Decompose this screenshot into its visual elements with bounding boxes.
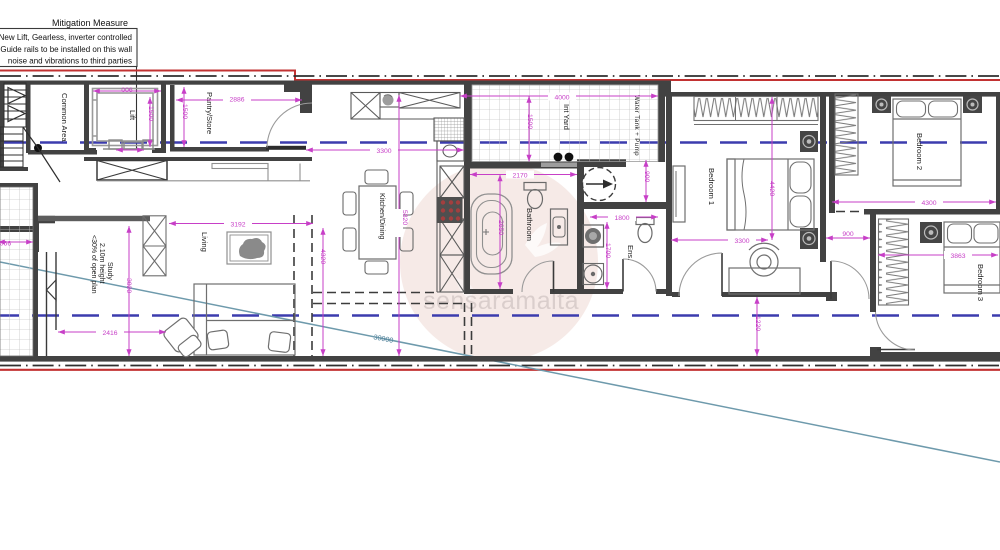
- svg-text:New Lift, Gearless, inverter c: New Lift, Gearless, inverter controlled: [0, 33, 132, 42]
- svg-text:Pantry/Store: Pantry/Store: [205, 92, 214, 134]
- svg-text:2.10m height: 2.10m height: [98, 243, 105, 284]
- svg-text:Bedroom 3: Bedroom 3: [976, 264, 985, 301]
- svg-text:Bedroom 2: Bedroom 2: [915, 133, 924, 170]
- svg-text:900: 900: [643, 171, 650, 183]
- svg-text:1220: 1220: [754, 316, 761, 331]
- svg-text:Guide rails to be installed on: Guide rails to be installed on this wall: [0, 45, 132, 54]
- svg-text:3020: 3020: [125, 278, 132, 293]
- svg-text:noise and vibrations to third: noise and vibrations to third parties: [8, 57, 132, 66]
- svg-text:2416: 2416: [102, 330, 117, 337]
- svg-text:1500: 1500: [147, 106, 154, 121]
- svg-text:4420: 4420: [768, 181, 775, 196]
- svg-text:Water Tank + Pump: Water Tank + Pump: [633, 95, 640, 156]
- svg-text:4000: 4000: [554, 95, 569, 102]
- svg-text:Living: Living: [200, 232, 209, 252]
- svg-text:Ens.: Ens.: [626, 245, 635, 260]
- svg-text:1800: 1800: [614, 215, 629, 222]
- svg-text:4300: 4300: [921, 200, 936, 207]
- svg-text:900: 900: [842, 231, 854, 238]
- svg-text:4320: 4320: [319, 249, 326, 264]
- svg-text:Bathroom: Bathroom: [525, 208, 534, 241]
- svg-text:Int Yard: Int Yard: [562, 104, 571, 130]
- svg-text:2170: 2170: [512, 173, 527, 180]
- svg-text:3300: 3300: [376, 148, 391, 155]
- svg-text:Lift: Lift: [128, 110, 137, 121]
- svg-text:1700: 1700: [604, 243, 611, 258]
- svg-text:Study: Study: [106, 262, 113, 280]
- svg-text:3300: 3300: [734, 238, 749, 245]
- svg-text:3066: 3066: [0, 241, 11, 248]
- svg-text:Common Area: Common Area: [60, 93, 69, 142]
- svg-text:1500: 1500: [526, 114, 533, 129]
- svg-text:Bedroom 1: Bedroom 1: [707, 168, 716, 205]
- svg-text:Kitchen/Dining: Kitchen/Dining: [378, 193, 387, 239]
- svg-text:2886: 2886: [229, 97, 244, 104]
- svg-text:30000: 30000: [373, 332, 394, 345]
- svg-text:<30% of open plan: <30% of open plan: [90, 235, 97, 294]
- svg-text:Mitigation Measure: Mitigation Measure: [52, 18, 128, 28]
- svg-text:3192: 3192: [230, 222, 245, 229]
- svg-text:900: 900: [121, 86, 133, 93]
- svg-text:5820: 5820: [401, 210, 408, 225]
- svg-text:3863: 3863: [950, 253, 965, 260]
- svg-text:2650: 2650: [497, 220, 504, 235]
- svg-text:1500: 1500: [181, 104, 188, 119]
